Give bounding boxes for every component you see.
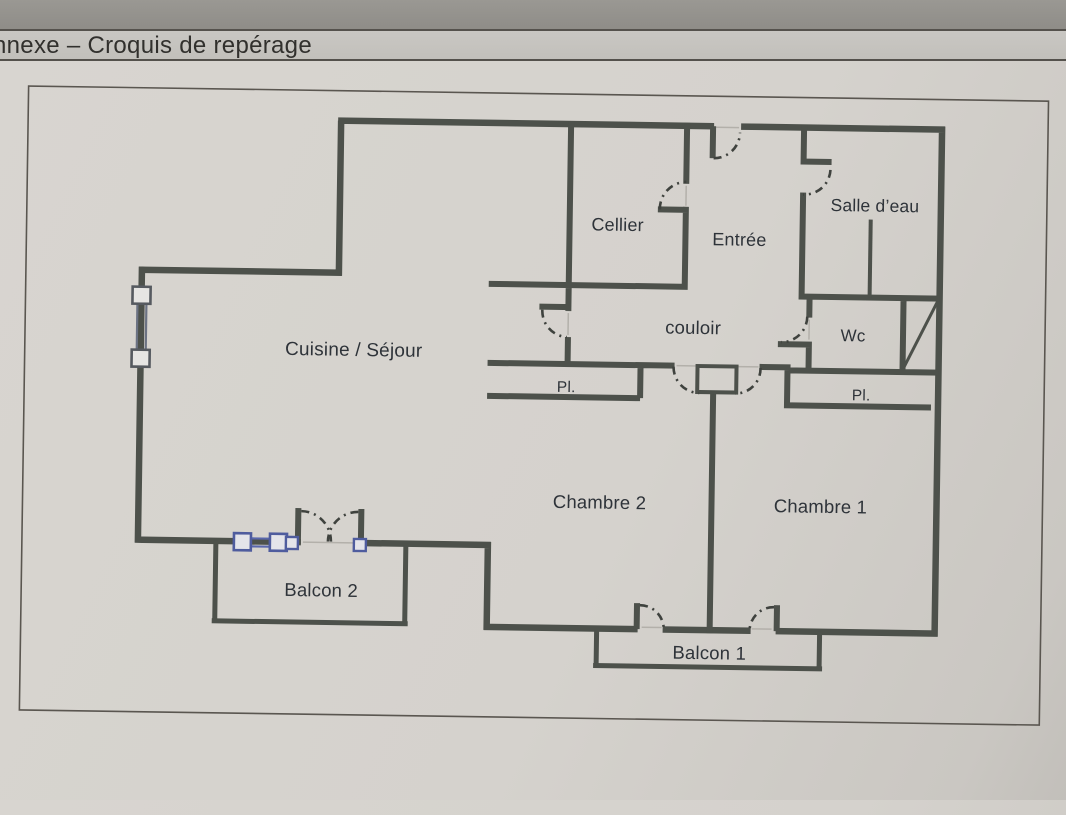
room-label-wc: Wc (840, 326, 866, 345)
room-label-cuisine-sejour: Cuisine / Séjour (285, 339, 423, 362)
room-label-couloir: couloir (665, 317, 721, 339)
room-label-cellier: Cellier (591, 214, 644, 235)
door-swing-arcs (300, 126, 831, 630)
room-label-balcon2: Balcon 2 (284, 579, 358, 601)
wall-block (697, 366, 736, 393)
room-label-salle-deau: Salle d’eau (830, 195, 919, 216)
room-label-balcon1: Balcon 1 (672, 642, 746, 664)
floor-plan: Cellier Entrée Salle d’eau couloir Wc Cu… (0, 0, 1066, 815)
room-label-chambre2: Chambre 2 (553, 491, 647, 513)
scanned-page: nnexe – Croquis de repérage (0, 0, 1066, 800)
room-label-placard-chambre1: Pl. (852, 387, 871, 404)
bathroom-partition (870, 220, 871, 298)
room-label-chambre1: Chambre 1 (774, 495, 868, 517)
room-label-entree: Entrée (712, 229, 767, 250)
shaft-diagonal-line (903, 301, 938, 370)
outer-walls (134, 115, 945, 637)
room-label-placard-chambre2: Pl. (557, 379, 576, 396)
